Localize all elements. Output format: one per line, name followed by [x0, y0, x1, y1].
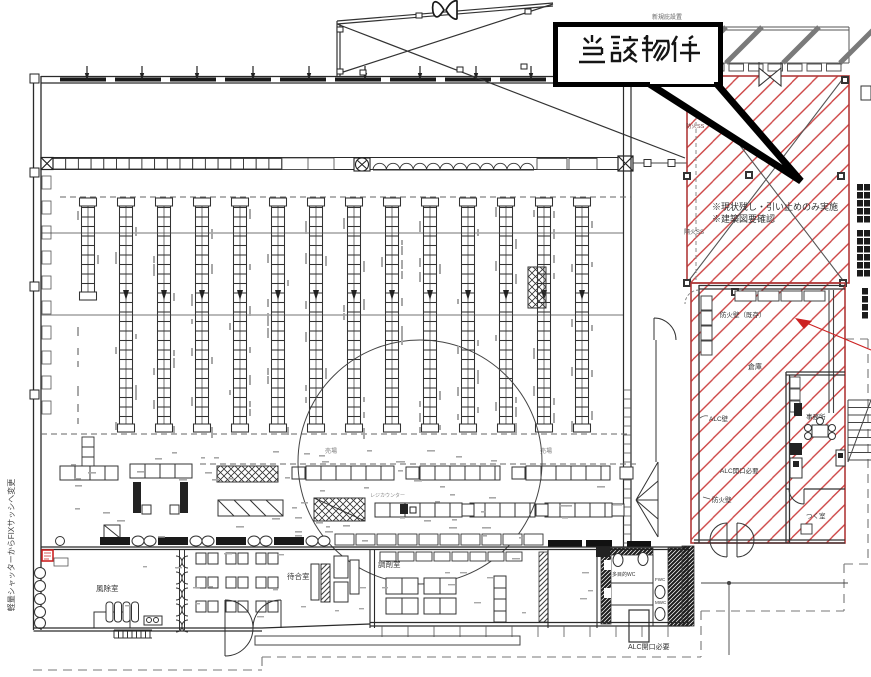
svg-text:※現状残し・引い止めのみ実施: ※現状残し・引い止めのみ実施: [712, 201, 838, 212]
svg-text:ALC開口必要: ALC開口必要: [720, 466, 759, 475]
svg-text:防火壁（既存）: 防火壁（既存）: [720, 310, 766, 319]
svg-text:※建築図要確認: ※建築図要確認: [712, 213, 775, 224]
svg-text:ALC壁: ALC壁: [709, 414, 729, 423]
svg-text:風除室: 風除室: [96, 583, 119, 593]
svg-text:売場: 売場: [540, 447, 552, 455]
svg-text:隔火SS: 隔火SS: [684, 228, 704, 236]
svg-text:防火SS: 防火SS: [686, 122, 705, 130]
svg-text:待合室: 待合室: [287, 571, 310, 581]
svg-text:ALC開口必要: ALC開口必要: [628, 642, 670, 651]
svg-text:FWC: FWC: [655, 577, 666, 582]
svg-text:新規庇設置: 新規庇設置: [652, 13, 682, 21]
svg-text:つく室: つく室: [806, 511, 826, 520]
svg-text:防火壁: 防火壁: [712, 495, 732, 504]
svg-text:売場: 売場: [325, 447, 337, 455]
svg-text:軽量シャッターからFIXサッシへ変更: 軽量シャッターからFIXサッシへ変更: [6, 479, 16, 611]
svg-text:MWC: MWC: [655, 600, 667, 605]
svg-text:倉庫: 倉庫: [748, 362, 762, 371]
svg-text:レジカウンター: レジカウンター: [370, 492, 405, 499]
svg-text:多目的WC: 多目的WC: [612, 571, 636, 578]
